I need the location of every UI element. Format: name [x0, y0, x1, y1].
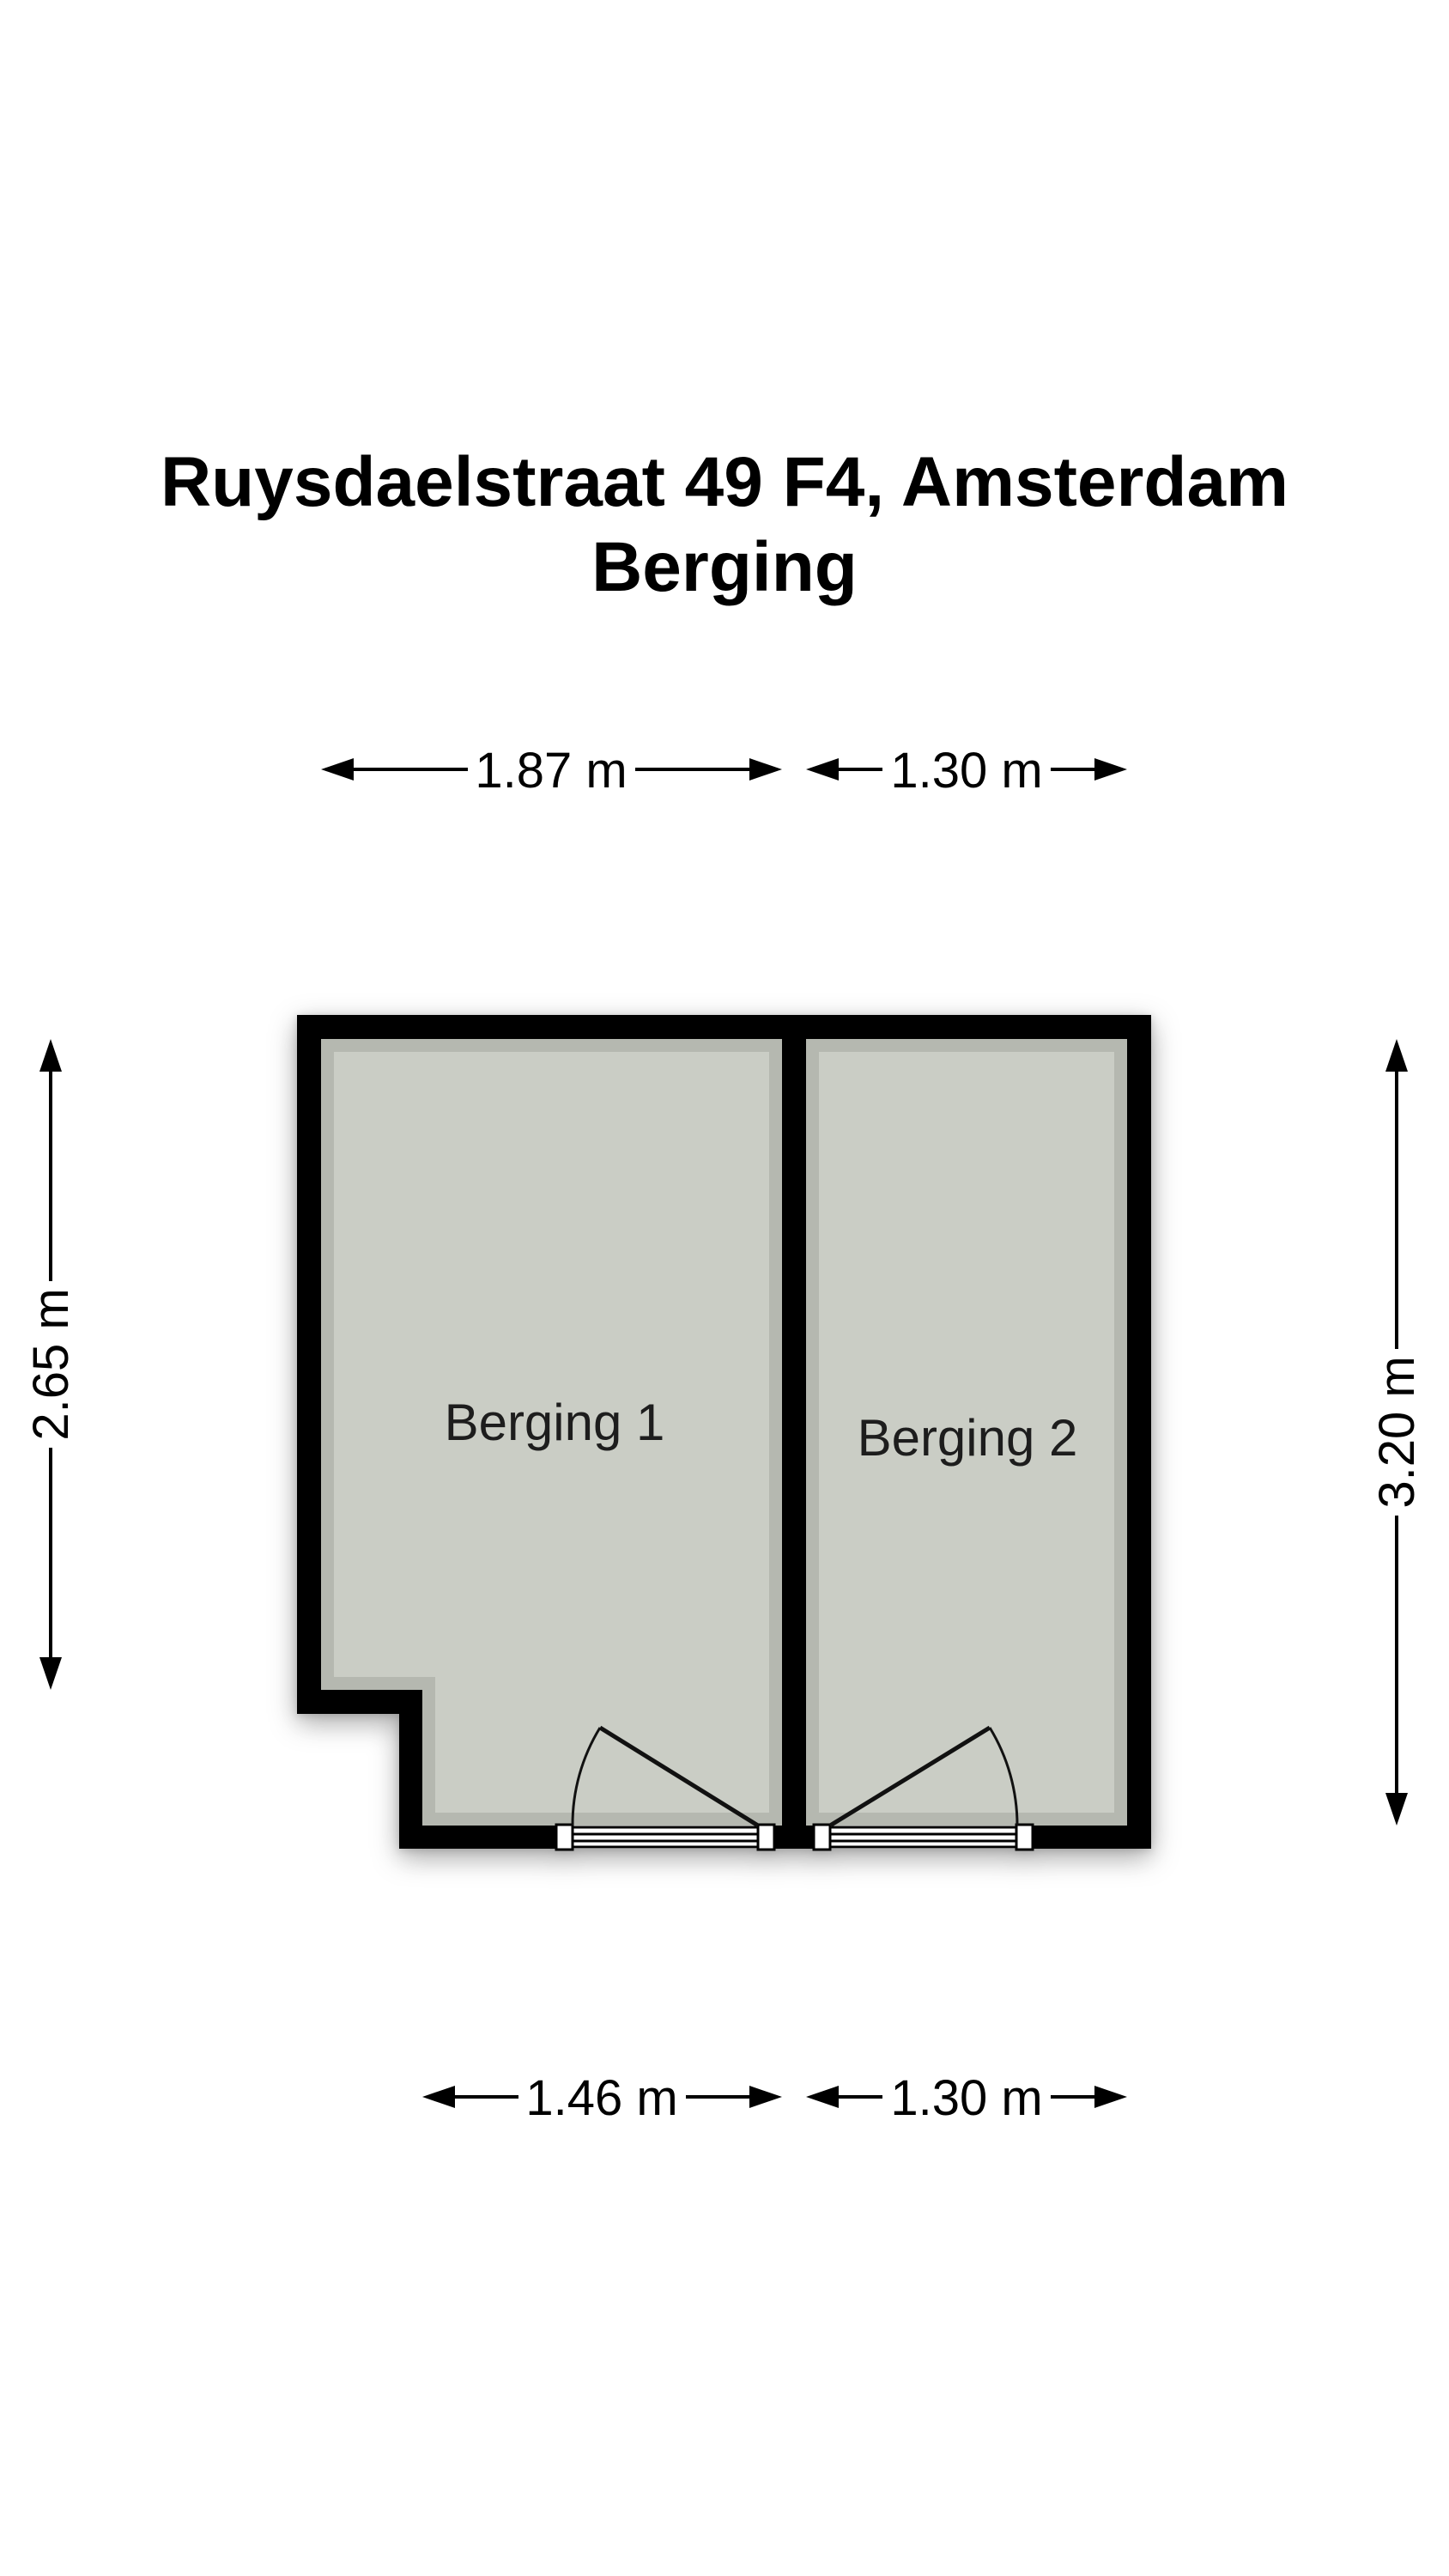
dim-bottom-left: 1.46 m — [422, 2070, 782, 2126]
door-2-right-post — [1016, 1825, 1033, 1850]
arrow-right-head — [749, 758, 782, 781]
floor-plan-canvas: Berging 1 Berging 2 1.87 m 1.30 m 2.65 m… — [0, 0, 1449, 2576]
dim-right-label: 3.20 m — [1369, 1356, 1425, 1508]
floor-plan: Berging 1 Berging 2 — [297, 1015, 1151, 1850]
door-1-left-post — [556, 1825, 573, 1850]
dim-right-height: 3.20 m — [1369, 1039, 1425, 1826]
dim-top-right-label: 1.30 m — [890, 743, 1042, 799]
door-1-right-post — [758, 1825, 774, 1850]
dim-top-left-label: 1.87 m — [475, 743, 627, 799]
dim-top-right: 1.30 m — [806, 743, 1127, 799]
door-2-left-post — [814, 1825, 830, 1850]
arrow-right-head — [749, 2086, 782, 2108]
arrow-down-head — [39, 1657, 62, 1690]
dim-left-height: 2.65 m — [23, 1039, 79, 1690]
door-2-opening — [814, 1826, 1033, 1849]
room-berging-1-label: Berging 1 — [445, 1394, 665, 1451]
door-berging-1-threshold — [556, 1825, 774, 1850]
room-berging-2-label: Berging 2 — [858, 1409, 1078, 1467]
dim-bottom-left-label: 1.46 m — [525, 2070, 677, 2126]
arrow-down-head — [1385, 1793, 1408, 1826]
dim-bottom-right: 1.30 m — [806, 2070, 1127, 2126]
arrow-right-head — [1094, 2086, 1127, 2108]
door-berging-2-threshold — [814, 1825, 1033, 1850]
dim-left-label: 2.65 m — [23, 1288, 79, 1440]
dim-bottom-right-label: 1.30 m — [890, 2070, 1042, 2126]
dim-top-left: 1.87 m — [321, 743, 782, 799]
arrow-right-head — [1094, 758, 1127, 781]
door-1-opening — [556, 1826, 774, 1849]
